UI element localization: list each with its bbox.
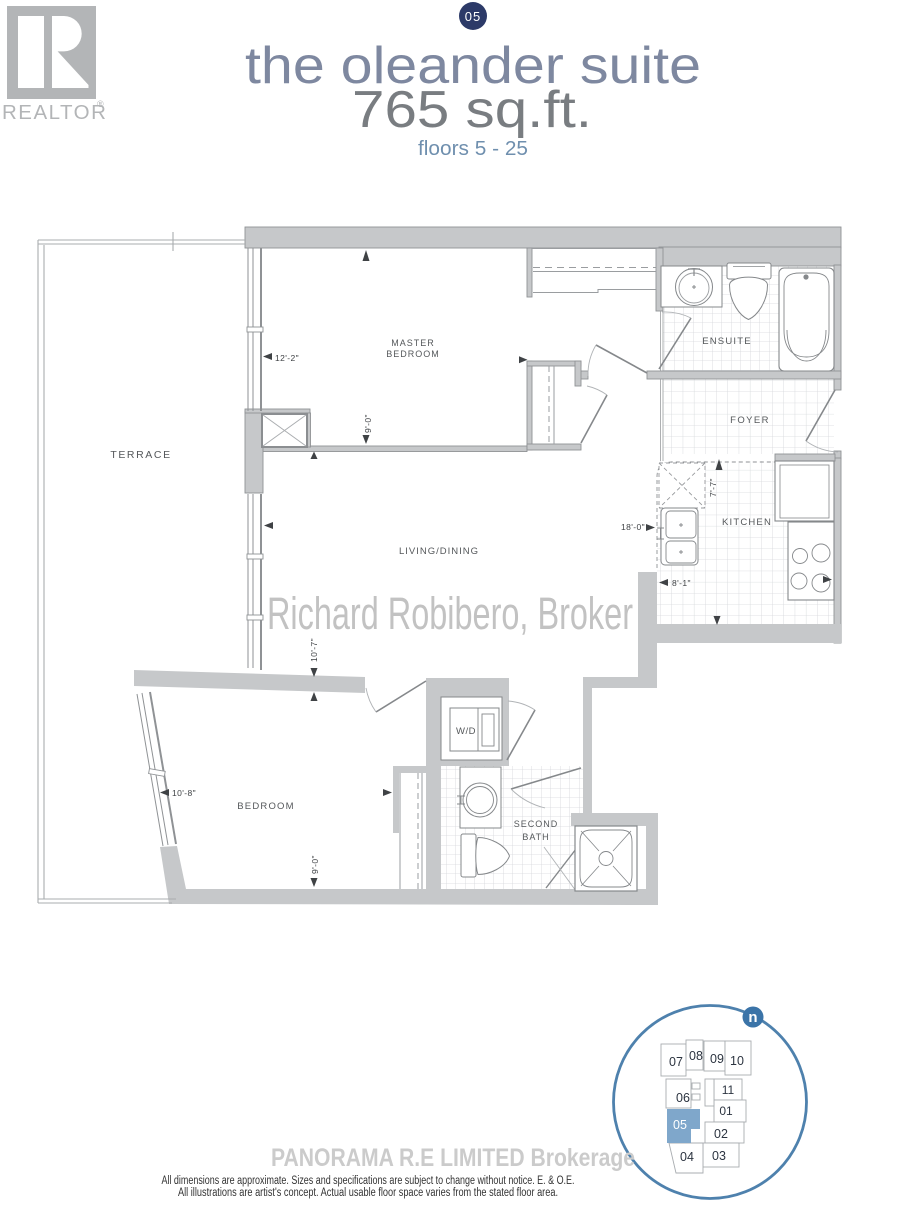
svg-text:KITCHEN: KITCHEN: [722, 517, 772, 528]
svg-text:Richard Robibero, Broker: Richard Robibero, Broker: [267, 588, 633, 639]
svg-text:REALTOR: REALTOR: [2, 101, 107, 124]
svg-text:BATH: BATH: [522, 832, 549, 842]
svg-text:8'-1": 8'-1": [672, 578, 691, 588]
svg-text:05: 05: [465, 9, 481, 24]
svg-text:04: 04: [680, 1150, 694, 1164]
svg-text:BEDROOM: BEDROOM: [386, 349, 440, 359]
svg-text:12'-2": 12'-2": [275, 353, 299, 363]
svg-text:10'-7": 10'-7": [309, 638, 319, 662]
svg-text:07: 07: [669, 1055, 683, 1069]
svg-text:02: 02: [714, 1127, 728, 1141]
svg-text:floors 5 - 25: floors 5 - 25: [418, 138, 528, 160]
svg-text:®: ®: [97, 99, 104, 109]
svg-text:08: 08: [689, 1049, 703, 1063]
svg-text:01: 01: [719, 1104, 733, 1118]
svg-text:11: 11: [722, 1083, 735, 1097]
svg-text:W/D: W/D: [456, 726, 476, 737]
svg-text:03: 03: [712, 1149, 726, 1163]
svg-text:All dimensions are approximate: All dimensions are approximate. Sizes an…: [162, 1175, 575, 1187]
svg-text:MASTER: MASTER: [391, 338, 435, 348]
svg-text:09: 09: [710, 1052, 724, 1066]
svg-text:PANORAMA R.E LIMITED Brokerage: PANORAMA R.E LIMITED Brokerage: [271, 1144, 635, 1172]
svg-text:SECOND: SECOND: [514, 819, 559, 829]
svg-text:n: n: [748, 1009, 757, 1026]
svg-text:LIVING/DINING: LIVING/DINING: [399, 546, 479, 557]
svg-text:18'-0": 18'-0": [621, 522, 645, 532]
svg-text:FOYER: FOYER: [730, 415, 770, 426]
svg-text:ENSUITE: ENSUITE: [702, 336, 752, 347]
svg-text:9'-0": 9'-0": [363, 414, 373, 433]
svg-text:All illustrations are artist's: All illustrations are artist's concept. …: [178, 1187, 558, 1199]
svg-text:7'-7": 7'-7": [708, 478, 718, 497]
svg-text:10: 10: [730, 1054, 744, 1068]
svg-text:BEDROOM: BEDROOM: [237, 801, 295, 812]
svg-text:05: 05: [673, 1118, 687, 1132]
svg-text:9'-0": 9'-0": [310, 855, 320, 874]
svg-text:06: 06: [676, 1091, 690, 1105]
svg-text:765 sq.ft.: 765 sq.ft.: [352, 81, 592, 139]
svg-text:10'-8": 10'-8": [172, 788, 196, 798]
svg-text:TERRACE: TERRACE: [110, 449, 171, 461]
